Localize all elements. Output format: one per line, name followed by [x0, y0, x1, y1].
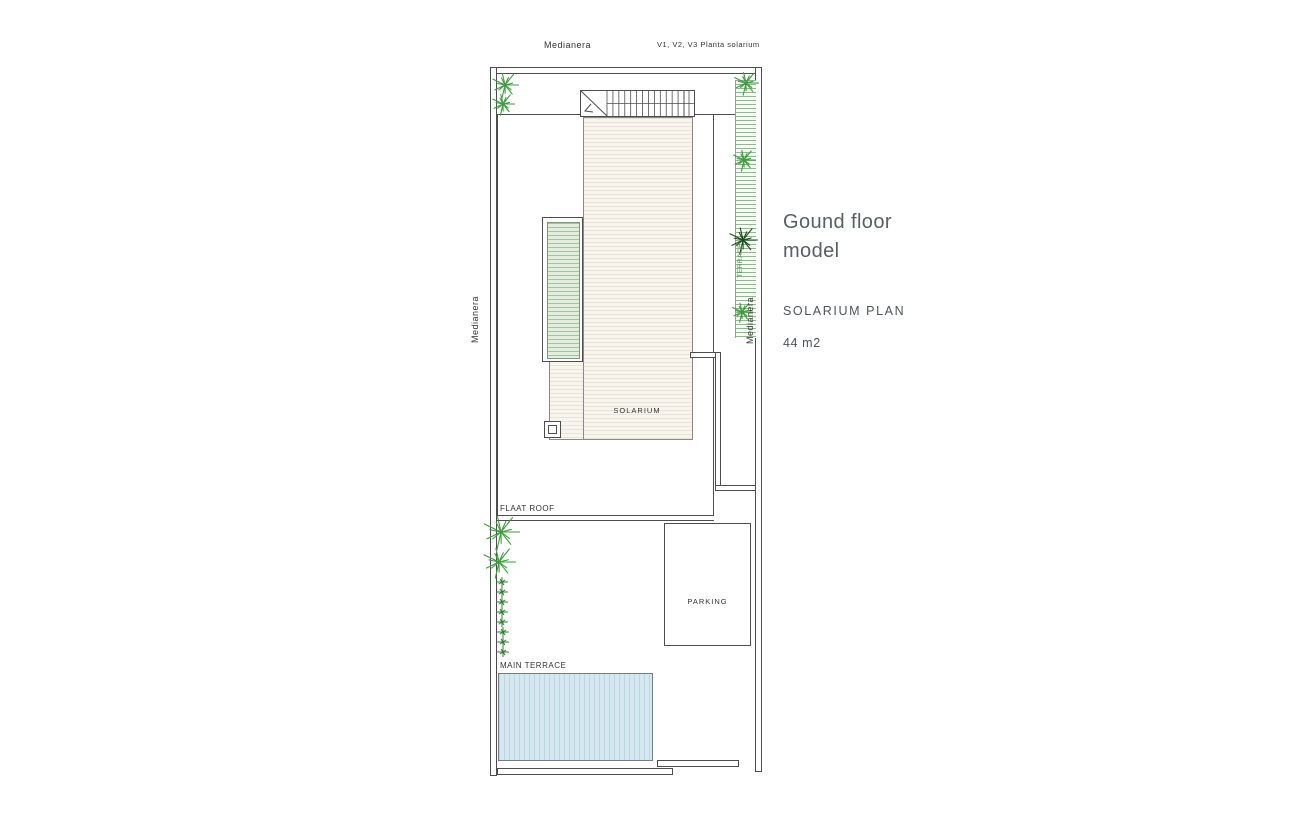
- solarium-area: [583, 117, 693, 440]
- plant-icon: [496, 606, 508, 618]
- plant-icon: [496, 586, 508, 598]
- staircase: [580, 90, 695, 117]
- page-title: Gound floor model: [783, 208, 901, 266]
- pool: [498, 673, 653, 761]
- plant-icon: [482, 545, 516, 579]
- stair-direction-arrow-icon: [585, 104, 593, 112]
- wall-right-connector: [715, 485, 756, 491]
- plan-area: 44 m2: [783, 336, 821, 350]
- plant-icon: [496, 596, 508, 608]
- plant-icon: [496, 616, 508, 628]
- page: { "plan": { "labels": { "medianera_top":…: [0, 0, 1290, 840]
- wall-boundary-bottom-left: [497, 768, 673, 775]
- plan-title: SOLARIUM PLAN: [783, 304, 905, 318]
- staircase-drawing: [581, 91, 694, 116]
- plant-icon: [497, 636, 509, 648]
- main-terrace-label: MAIN TERRACE: [500, 661, 566, 670]
- plant-icon: [482, 513, 520, 551]
- medianera-right-label: Medianera: [745, 297, 755, 344]
- flat-roof-label: FLAAT ROOF: [500, 504, 555, 513]
- wall-boundary-left: [490, 67, 497, 776]
- terrace-strip-label: TERRACE: [737, 243, 744, 278]
- plant-icon: [497, 646, 509, 658]
- plant-icon: [497, 626, 509, 638]
- planter-bed: [547, 222, 580, 359]
- wall-boundary-bottom-right: [657, 760, 739, 767]
- parking-area: [664, 523, 751, 646]
- medianera-top-label: Medianera: [544, 40, 591, 50]
- plant-icon: [496, 576, 508, 588]
- parking-label: PARKING: [664, 597, 751, 606]
- window-note-label: V1, V2, V3 Planta solarium: [657, 40, 760, 49]
- flat-roof-bottom-line: [497, 520, 714, 521]
- wall-boundary-right: [755, 67, 762, 772]
- medianera-left-label: Medianera: [470, 296, 480, 343]
- solarium-corner-box-inner: [548, 425, 557, 434]
- wall-boundary-top: [490, 67, 762, 74]
- wall-right-vertical: [715, 352, 721, 491]
- solarium-label: SOLARIUM: [583, 406, 691, 415]
